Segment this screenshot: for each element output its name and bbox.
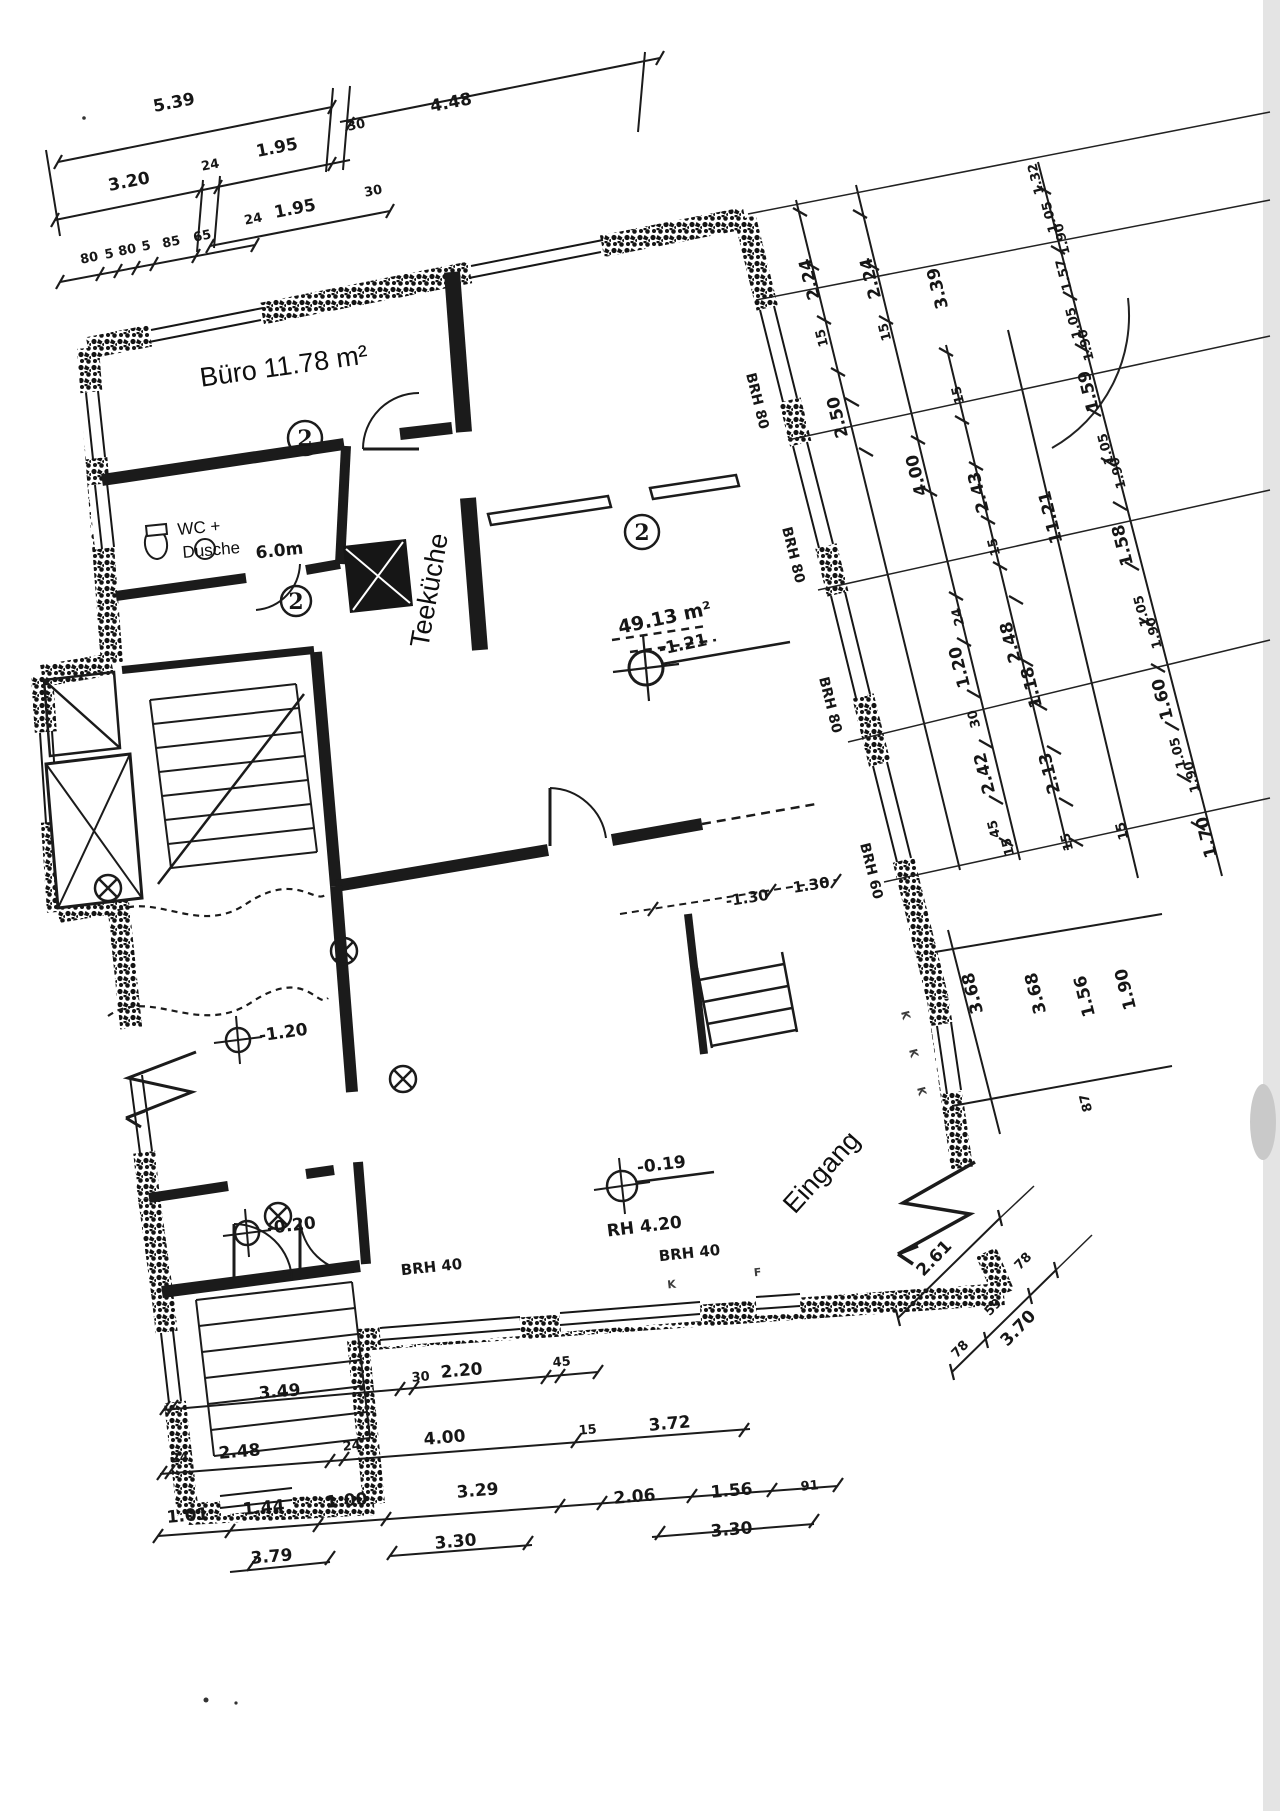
- sill-label: BRH 40: [658, 1241, 721, 1265]
- dim: 15: [813, 327, 832, 348]
- dim: 1.18: [1017, 664, 1047, 710]
- dim: 30: [363, 182, 384, 200]
- dim: 1.57: [1053, 257, 1075, 292]
- dim: 1.60: [1148, 676, 1178, 722]
- dim: 1.70: [1192, 814, 1222, 860]
- sill-label: BRH 40: [400, 1255, 463, 1279]
- sill-label: BRH 60: [856, 841, 886, 901]
- interior-walls: [102, 272, 704, 1292]
- dim: 1.90: [1143, 615, 1165, 650]
- dim: 3.30: [434, 1530, 478, 1554]
- level-value: -0.20: [266, 1213, 317, 1239]
- dim: 1.32: [1025, 161, 1047, 196]
- stair-opening-dim: -1.30: [724, 886, 770, 911]
- dim: 1.20: [945, 644, 975, 690]
- dim: 2.20: [440, 1359, 484, 1383]
- dim: 1.95: [255, 134, 300, 162]
- dim: 1.44: [242, 1496, 286, 1520]
- dim: 24: [949, 606, 968, 627]
- wall-mark: K: [906, 1047, 921, 1059]
- room-number-hall: 2: [634, 520, 649, 546]
- dim: 24: [342, 1438, 361, 1455]
- top-dimension-texts: 5.39 4.48 3.20 24 1.95 30 24 1.95 30 80 …: [79, 89, 474, 267]
- wall-mark: K: [914, 1085, 929, 1097]
- dim: 1.90: [1181, 759, 1203, 794]
- stair-opening-dim: 1.30: [792, 873, 831, 897]
- level-markers: [214, 635, 790, 1257]
- dim: 1.01: [166, 1504, 210, 1528]
- dimension-lines: [46, 51, 1270, 1572]
- doors: [234, 393, 606, 1284]
- dim: 45: [985, 818, 1004, 839]
- floor-plan-drawing: 2 2 2 -1.20 -0.20 -0.19 RH 4.20 49.13 m²…: [0, 0, 1280, 1811]
- dim: 24: [170, 1450, 189, 1467]
- wall-stub-bar: [488, 496, 611, 525]
- dim: 3.72: [648, 1412, 692, 1436]
- room-height-label: RH 4.20: [606, 1213, 683, 1242]
- dim: 1.00: [325, 1489, 369, 1513]
- room-label-wc-2: Dusche: [182, 538, 241, 562]
- dim: 30: [411, 1369, 430, 1386]
- dim: 5.39: [152, 89, 197, 117]
- dim: 2.48: [218, 1440, 262, 1464]
- dim: 15: [578, 1422, 597, 1439]
- dim: 5: [140, 238, 152, 254]
- stairwell-top-left: [44, 672, 317, 908]
- dim: 5: [103, 246, 115, 262]
- dim: 1.56: [1070, 973, 1100, 1019]
- dim: 11.21: [1035, 489, 1067, 546]
- dim: 1.90: [1107, 455, 1129, 490]
- dim: 3.68: [1021, 970, 1051, 1016]
- dim: 65: [192, 227, 213, 245]
- room-label-eingang: Eingang: [777, 1125, 866, 1219]
- dim: 3.30: [710, 1518, 754, 1542]
- dim: 3.79: [250, 1545, 294, 1569]
- dim: 15: [1113, 820, 1132, 841]
- dim: 30: [346, 116, 367, 134]
- dim: 3.29: [456, 1479, 500, 1503]
- dim: 87: [1077, 1092, 1096, 1113]
- dim: 1.56: [710, 1479, 754, 1503]
- dim: 2.48: [996, 619, 1026, 665]
- dim: 78: [949, 1338, 972, 1361]
- stair-entrance: [697, 952, 797, 1048]
- sill-label: BRH 80: [815, 675, 845, 735]
- dim: 80: [79, 249, 100, 267]
- sill-label: BRH 80: [778, 525, 808, 585]
- stair-bottom-left: [196, 1282, 370, 1456]
- dim: 3.39: [923, 265, 953, 311]
- dim: 2.06: [613, 1485, 657, 1509]
- dim: 2.24: [856, 255, 886, 301]
- dim: 85: [161, 233, 182, 251]
- sill-label: BRH 80: [742, 371, 772, 431]
- dim: 24: [200, 156, 221, 174]
- dim: 2.24: [795, 256, 825, 302]
- dim: 4.00: [423, 1426, 467, 1450]
- room-area-wc: 6.0m: [255, 539, 305, 564]
- dim: 24: [243, 210, 264, 228]
- scan-artifacts: [82, 0, 1280, 1811]
- room-label-teekueche: Teeküche: [404, 531, 454, 650]
- level-value: -0.19: [636, 1152, 687, 1178]
- dim: 1.59: [1074, 368, 1104, 414]
- dim: 3.68: [958, 970, 988, 1016]
- hall-level-label: -1.21: [657, 630, 709, 660]
- wall-mark: K: [667, 1278, 677, 1292]
- dim: 80: [117, 241, 138, 259]
- room-number-wc: 2: [288, 589, 303, 615]
- floor-plan-sheet: 2 2 2 -1.20 -0.20 -0.19 RH 4.20 49.13 m²…: [0, 0, 1280, 1811]
- dim: 3.20: [107, 168, 152, 196]
- dim: 2.43: [964, 469, 994, 515]
- dim: 91: [800, 1478, 819, 1495]
- wall-stub-bar: [650, 475, 739, 499]
- dim: 15: [949, 384, 968, 405]
- dim: 1.90: [1075, 327, 1097, 362]
- room-label-buero: Büro 11.78 m²: [198, 339, 370, 392]
- dim: 2.13: [1035, 750, 1065, 796]
- dim: 1.90: [1111, 966, 1141, 1012]
- level-value: -1.20: [258, 1020, 309, 1047]
- dim: 45: [552, 1354, 571, 1371]
- dim: 3.70: [997, 1306, 1041, 1350]
- dim: 3.49: [258, 1380, 302, 1404]
- wall-mark: K: [898, 1009, 913, 1021]
- dim: 30: [965, 708, 984, 729]
- dim: 15: [1058, 831, 1077, 852]
- dim: 15: [985, 536, 1004, 557]
- room-number-buero: 2: [297, 426, 312, 452]
- room-label-wc-1: WC +: [177, 516, 222, 539]
- dim: 1.95: [273, 195, 318, 223]
- dim: 78: [1012, 1250, 1035, 1273]
- bottom-dimension-texts: 3.49 30 2.20 45 24 2.48 24 4.00 15 3.72 …: [166, 1354, 820, 1569]
- wall-mark: F: [753, 1266, 762, 1280]
- dim: 4.48: [429, 89, 474, 117]
- dashed-lines: [108, 626, 836, 1016]
